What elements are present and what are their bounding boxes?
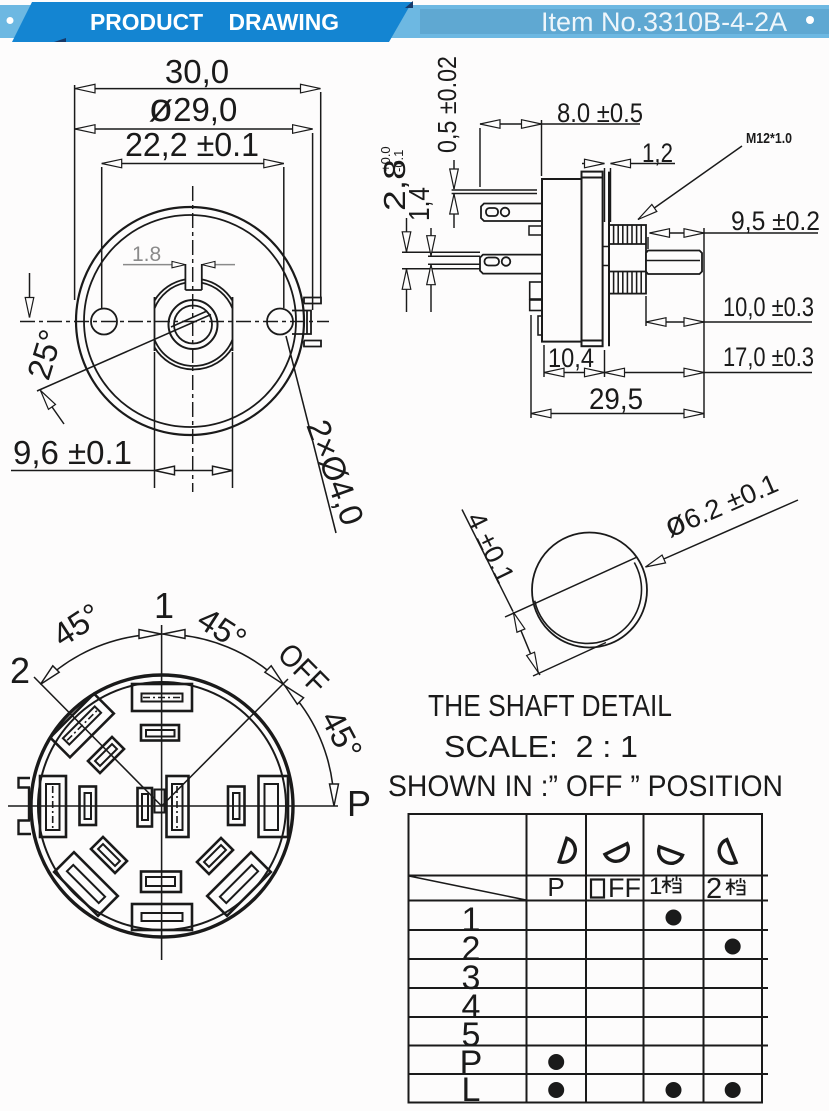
svg-text:45°: 45° xyxy=(314,704,370,765)
svg-text:1.8: 1.8 xyxy=(132,243,161,266)
svg-text:-0.1: -0.1 xyxy=(391,150,406,172)
svg-text:M12*1.0: M12*1.0 xyxy=(746,131,792,147)
svg-text:FF: FF xyxy=(608,873,641,903)
svg-text:PRODUCT DRAWING: PRODUCT DRAWING xyxy=(90,9,339,35)
svg-text:SHOWN IN :” OFF ” POSITION: SHOWN IN :” OFF ” POSITION xyxy=(388,770,783,803)
svg-text:30,0: 30,0 xyxy=(165,53,229,90)
svg-text:17,0 ±0.3: 17,0 ±0.3 xyxy=(723,342,814,372)
svg-text:THE SHAFT DETAIL: THE SHAFT DETAIL xyxy=(428,688,672,723)
svg-text:45°: 45° xyxy=(191,600,253,658)
svg-text:Item No.3310B-4-2A: Item No.3310B-4-2A xyxy=(541,7,787,37)
svg-text:10,4: 10,4 xyxy=(548,343,594,373)
svg-text:2: 2 xyxy=(10,650,30,691)
svg-text:P: P xyxy=(547,872,564,902)
svg-text:22,2 ±0.1: 22,2 ±0.1 xyxy=(125,126,259,163)
svg-text:29,5: 29,5 xyxy=(589,383,643,416)
svg-text:1,4: 1,4 xyxy=(404,187,436,221)
svg-text:1: 1 xyxy=(649,873,662,900)
svg-text:OFF: OFF xyxy=(271,636,335,700)
svg-text:SCALE: 2 : 1: SCALE: 2 : 1 xyxy=(444,729,638,764)
svg-text:4 ±0.1: 4 ±0.1 xyxy=(461,507,521,587)
svg-text:ø6.2 ±0.1: ø6.2 ±0.1 xyxy=(658,463,783,545)
svg-text:2×Ø4,0: 2×Ø4,0 xyxy=(299,415,371,530)
svg-text:9,6 ±0.1: 9,6 ±0.1 xyxy=(13,434,132,471)
svg-text:0,5 ±0.02: 0,5 ±0.02 xyxy=(432,56,462,153)
svg-text:ø29,0: ø29,0 xyxy=(149,86,238,130)
svg-text:9,5 ±0.2: 9,5 ±0.2 xyxy=(731,206,820,236)
svg-text:P: P xyxy=(347,783,371,824)
svg-text:45°: 45° xyxy=(46,596,108,654)
svg-text:10,0 ±0.3: 10,0 ±0.3 xyxy=(723,292,814,322)
svg-text:L: L xyxy=(462,1071,481,1109)
svg-text:1: 1 xyxy=(154,585,174,626)
svg-text:2: 2 xyxy=(706,873,722,905)
svg-text:25°: 25° xyxy=(20,325,70,384)
